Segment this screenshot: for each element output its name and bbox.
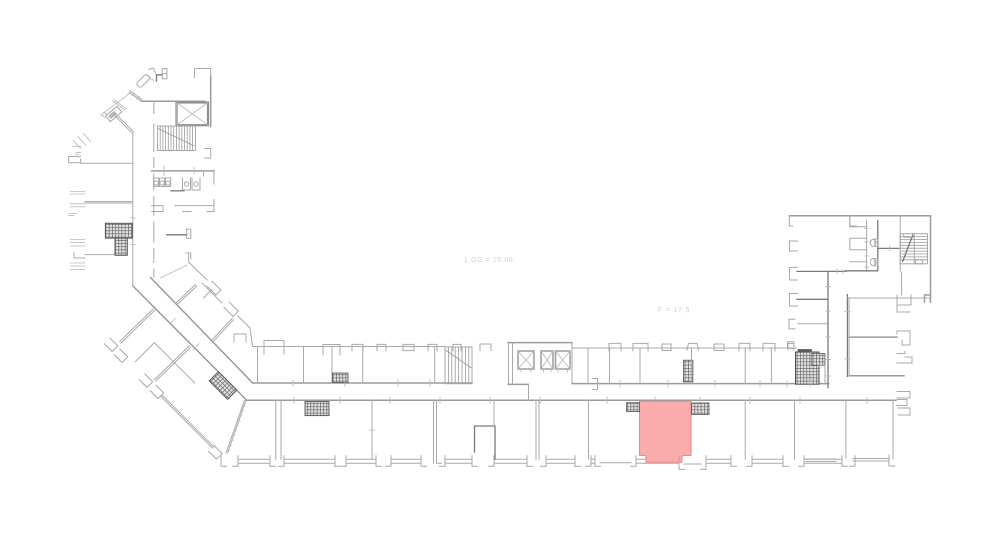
svg-text:F = 17,5: F = 17,5 (658, 307, 690, 314)
svg-text:1.OG = 26.06: 1.OG = 26.06 (464, 257, 513, 264)
